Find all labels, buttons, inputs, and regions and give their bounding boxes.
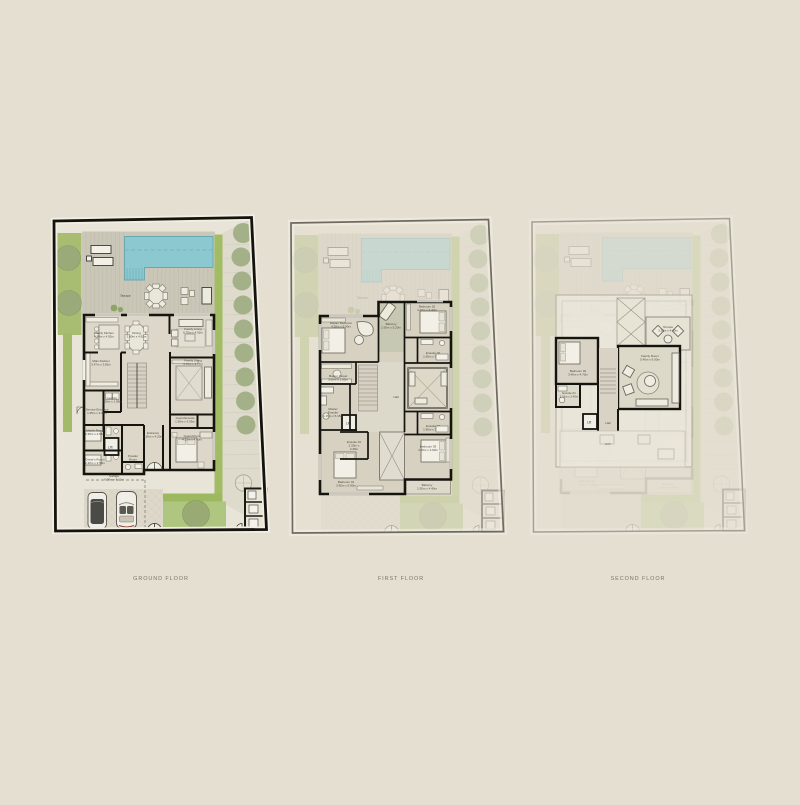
svg-text:SECOND FLOOR: SECOND FLOOR: [611, 576, 666, 582]
svg-text:FIRST FLOOR: FIRST FLOOR: [378, 576, 424, 582]
svg-text:Hall: Hall: [605, 421, 611, 425]
svg-text:GROUND FLOOR: GROUND FLOOR: [133, 576, 189, 582]
svg-text:Lift: Lift: [587, 421, 591, 425]
svg-text:3.20m x 4.40m: 3.20m x 4.40m: [658, 329, 678, 333]
svg-text:3.40m x 4.70m: 3.40m x 4.70m: [568, 373, 588, 377]
svg-text:2.15m x 2.45m: 2.15m x 2.45m: [560, 394, 579, 398]
svg-text:5.40m x 6.00m: 5.40m x 6.00m: [640, 358, 660, 362]
